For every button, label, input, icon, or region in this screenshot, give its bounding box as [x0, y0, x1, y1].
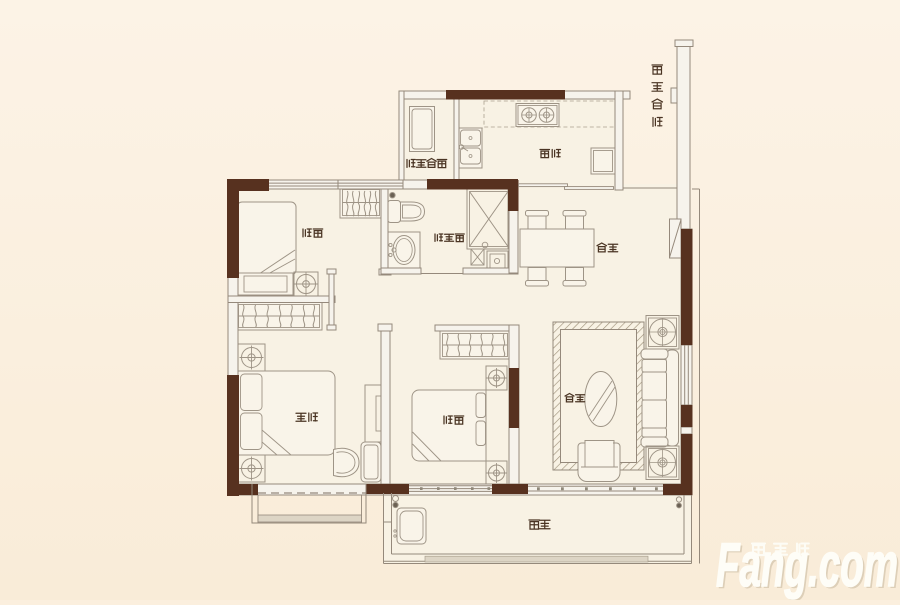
svg-text:Fang.com: Fang.com [716, 531, 898, 600]
